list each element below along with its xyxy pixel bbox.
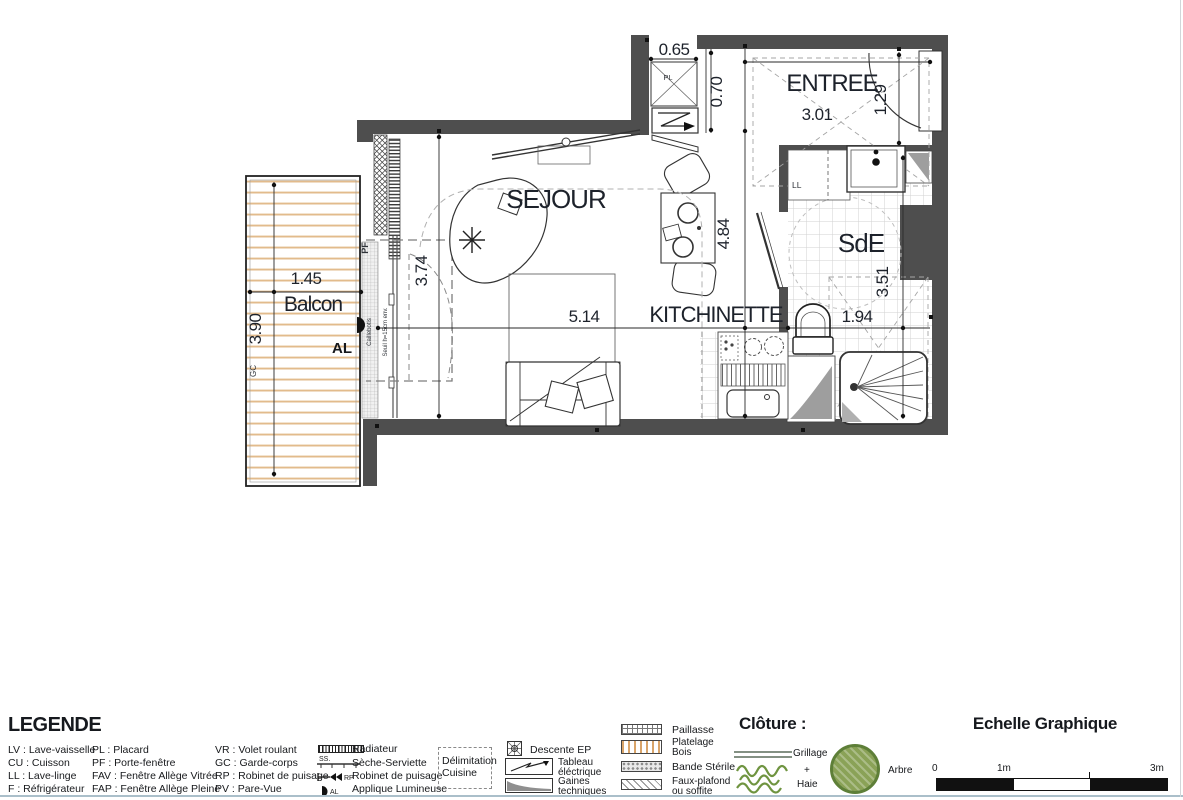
frame-border bbox=[1180, 0, 1181, 797]
descente-ep-icon bbox=[507, 741, 523, 757]
legend-item: RP : Robinet de puisage bbox=[215, 770, 329, 782]
mark-ll: LL bbox=[792, 180, 802, 190]
scale-title: Echelle Graphique bbox=[900, 714, 1183, 734]
legend-item: PV : Pare-Vue bbox=[215, 783, 282, 795]
grillage-label: Grillage bbox=[793, 748, 827, 759]
legend-item: PF : Porte-fenêtre bbox=[92, 757, 175, 769]
sde-door-leaf bbox=[757, 213, 779, 289]
legend: LEGENDE LV : Lave-vaisselle CU : Cuisson… bbox=[0, 705, 1183, 800]
kitchen-sink bbox=[727, 390, 779, 417]
lave-linge-zone bbox=[788, 150, 850, 200]
drainer bbox=[721, 364, 785, 386]
legend-item: LV : Lave-vaisselle bbox=[8, 744, 95, 756]
room-label-entree: ENTREE bbox=[786, 70, 877, 97]
pf-window-assembly bbox=[366, 135, 452, 418]
haie-label: Haie bbox=[797, 779, 818, 790]
legend-title: LEGENDE bbox=[8, 714, 101, 737]
tableau-electrique-icon bbox=[505, 758, 553, 775]
mark-seuil: Seuil h=15cm env. bbox=[383, 307, 389, 356]
dim-129: 1.29 bbox=[871, 85, 890, 116]
mark-pl: PL bbox=[663, 73, 672, 82]
floor-plan: SEJOUR ENTREE SdE KITCHINETTE Balcon 0.6… bbox=[0, 0, 1183, 710]
shower bbox=[840, 352, 927, 424]
bande-sterile-swatch bbox=[621, 761, 662, 772]
wall-light-label: Applique Lumineuse bbox=[352, 783, 447, 795]
mark-pf: PF bbox=[360, 242, 370, 254]
architectural-plan-page: SEJOUR ENTREE SdE KITCHINETTE Balcon 0.6… bbox=[0, 0, 1183, 800]
entry-door-leaf bbox=[652, 135, 698, 152]
radiator-strip bbox=[389, 139, 400, 259]
dim-351: 3.51 bbox=[873, 267, 892, 298]
descente-ep-label: Descente EP bbox=[530, 744, 591, 756]
legend-item: FAP : Fenêtre Allège Pleine bbox=[92, 783, 220, 795]
legend-item: FAV : Fenêtre Allège Vitrée bbox=[92, 770, 218, 782]
tree-icon bbox=[830, 744, 880, 794]
paillasse-label: Paillasse bbox=[672, 724, 714, 736]
room-label-sde: SdE bbox=[838, 228, 885, 258]
mark-al: AL bbox=[332, 340, 352, 357]
gaines-techniques-icon bbox=[505, 778, 553, 793]
dim-374: 3.74 bbox=[412, 256, 431, 287]
toilet bbox=[793, 304, 833, 354]
platelage-bois-swatch bbox=[621, 740, 662, 754]
scale-tick-1m: 1m bbox=[997, 763, 1011, 774]
water-tap-label: Robinet de puisage bbox=[352, 770, 443, 782]
towel-dryer-label: Sèche-Serviette bbox=[352, 757, 427, 769]
dim-390: 3.90 bbox=[246, 314, 265, 345]
dim-484: 4.84 bbox=[714, 219, 733, 250]
entry-door-box bbox=[652, 108, 698, 133]
delimitation-cuisine-box: Délimitation Cuisine bbox=[438, 747, 492, 789]
legend-item: CU : Cuisson bbox=[8, 757, 70, 769]
faux-plafond-swatch bbox=[621, 779, 662, 790]
dining-table bbox=[661, 150, 717, 296]
legend-item: GC : Garde-corps bbox=[215, 757, 298, 769]
bande-sterile-label: Bande Stérile bbox=[672, 761, 735, 773]
volet-roulant-hatch bbox=[374, 135, 387, 235]
ss-tag: SS. bbox=[319, 756, 330, 763]
grillage-haie-icon bbox=[734, 749, 796, 794]
legend-item: F : Réfrigérateur bbox=[8, 783, 84, 795]
paillasse-swatch bbox=[621, 724, 662, 735]
delimitation-line1: Délimitation bbox=[442, 755, 491, 767]
mark-caillebotis: Caillebotis bbox=[367, 318, 373, 346]
scale-bar bbox=[936, 778, 1168, 791]
sofa-bed bbox=[506, 274, 620, 426]
sejour-furniture bbox=[420, 130, 717, 426]
scale-segment-white bbox=[1014, 779, 1090, 790]
bottom-separator bbox=[0, 795, 1183, 797]
room-label-sejour: SEJOUR bbox=[506, 184, 606, 214]
scale-segment-black bbox=[1090, 779, 1167, 790]
gaines-techniques-box bbox=[787, 356, 835, 422]
scale-tick-0: 0 bbox=[932, 763, 938, 774]
mark-gc: GC bbox=[249, 365, 258, 377]
legend-item: PL : Placard bbox=[92, 744, 149, 756]
dim-065: 0.65 bbox=[659, 40, 690, 59]
room-label-balcon: Balcon bbox=[284, 293, 343, 316]
balcony bbox=[246, 176, 378, 486]
plus-label: + bbox=[804, 765, 810, 776]
platelage-label-2: Bois bbox=[672, 748, 691, 759]
delimitation-line2: Cuisine bbox=[442, 767, 491, 779]
cloture-title: Clôture : bbox=[739, 714, 806, 734]
dim-514: 5.14 bbox=[569, 307, 600, 326]
legend-item: LL : Lave-linge bbox=[8, 770, 77, 782]
scale-segment-black bbox=[937, 779, 1014, 790]
wall-shelf bbox=[492, 130, 640, 164]
tree-label: Arbre bbox=[888, 765, 912, 776]
legend-item: VR : Volet roulant bbox=[215, 744, 297, 756]
dim-194: 1.94 bbox=[842, 307, 873, 326]
scale-tick-3m: 3m bbox=[1150, 763, 1164, 774]
dim-070: 0.70 bbox=[707, 77, 726, 108]
room-label-kitchinette: KITCHINETTE bbox=[649, 302, 783, 327]
dim-301: 3.01 bbox=[802, 105, 833, 124]
dim-145: 1.45 bbox=[291, 269, 322, 288]
washbasin bbox=[847, 146, 905, 192]
